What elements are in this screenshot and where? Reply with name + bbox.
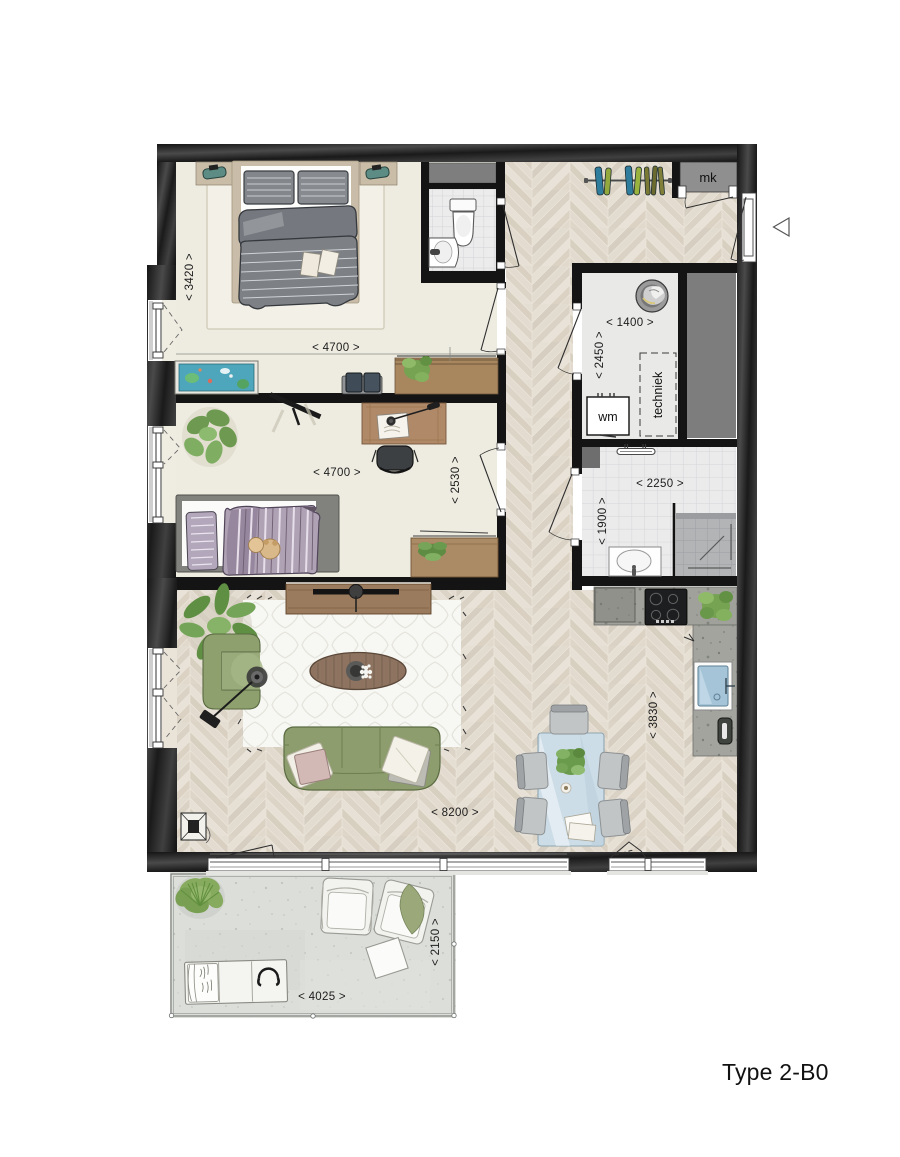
svg-text:wm: wm	[597, 410, 617, 424]
svg-text:< 2450 >: < 2450 >	[594, 331, 606, 379]
svg-text:< 2150 >: < 2150 >	[430, 918, 442, 966]
svg-text:< 8200 >: < 8200 >	[431, 807, 479, 819]
svg-text:< 4700 >: < 4700 >	[313, 467, 361, 479]
svg-text:< 4025 >: < 4025 >	[298, 991, 346, 1003]
svg-text:techniek: techniek	[651, 371, 665, 418]
svg-text:< 2250 >: < 2250 >	[636, 478, 684, 490]
svg-text:< 2530 >: < 2530 >	[450, 456, 462, 504]
svg-text:< 3420 >: < 3420 >	[184, 253, 196, 301]
svg-text:< 1900 >: < 1900 >	[597, 497, 609, 545]
svg-text:< 3830 >: < 3830 >	[648, 691, 660, 739]
svg-text:mk: mk	[699, 170, 717, 185]
svg-text:< 4700 >: < 4700 >	[312, 342, 360, 354]
svg-text:Type 2-B0: Type 2-B0	[722, 1059, 829, 1085]
svg-text:< 1400 >: < 1400 >	[606, 317, 654, 329]
